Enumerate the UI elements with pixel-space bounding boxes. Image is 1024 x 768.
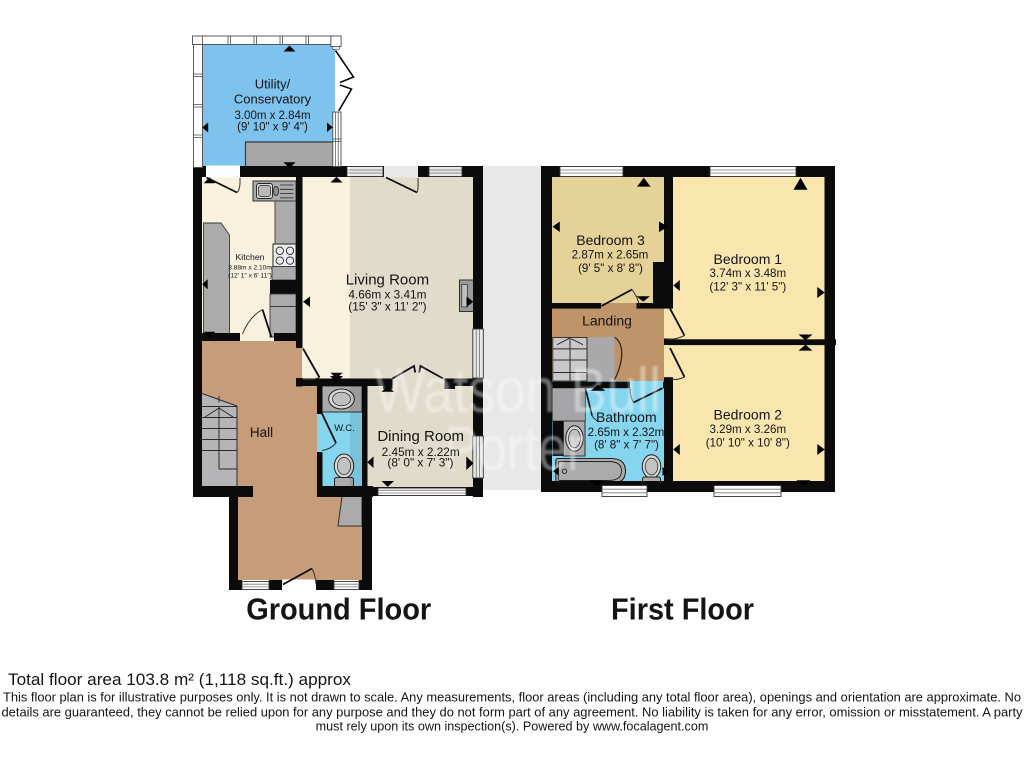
- svg-text:Hall: Hall: [250, 425, 273, 440]
- svg-text:Dining Room: Dining Room: [377, 428, 464, 445]
- svg-text:3.74m x 3.48m: 3.74m x 3.48m: [709, 267, 786, 280]
- svg-text:W.C.: W.C.: [334, 423, 355, 434]
- svg-text:3.29m x 3.26m: 3.29m x 3.26m: [709, 423, 786, 436]
- svg-text:(10' 10" x 10' 8"): (10' 10" x 10' 8"): [706, 437, 790, 450]
- svg-text:Kitchen: Kitchen: [236, 252, 265, 262]
- svg-text:2.87m x 2.65m: 2.87m x 2.65m: [572, 248, 649, 261]
- svg-text:2.65m x 2.32m: 2.65m x 2.32m: [588, 426, 665, 439]
- svg-text:Ground Floor: Ground Floor: [246, 592, 431, 627]
- svg-text:3.00m x 2.84m: 3.00m x 2.84m: [234, 110, 310, 122]
- svg-text:Bathroom: Bathroom: [596, 409, 657, 425]
- svg-text:First Floor: First Floor: [611, 592, 754, 627]
- svg-text:Landing: Landing: [582, 313, 632, 329]
- svg-text:Living Room: Living Room: [346, 271, 429, 288]
- svg-text:(12' 3" x 11' 5"): (12' 3" x 11' 5"): [709, 280, 786, 293]
- svg-text:Total floor area 103.8 m² (1,1: Total floor area 103.8 m² (1,118 sq.ft.)…: [8, 670, 352, 689]
- svg-text:Porter: Porter: [444, 414, 584, 484]
- svg-text:details are guaranteed, they c: details are guaranteed, they cannot be r…: [2, 706, 1024, 720]
- svg-text:(12' 1" x 6' 11"): (12' 1" x 6' 11"): [228, 272, 272, 279]
- svg-text:must rely upon its own inspect: must rely upon its own inspection(s). Po…: [316, 720, 709, 734]
- svg-text:(9' 10" x 9' 4"): (9' 10" x 9' 4"): [237, 121, 308, 133]
- svg-text:Utility/: Utility/: [255, 77, 291, 92]
- svg-text:3.88m x 2.10m: 3.88m x 2.10m: [228, 265, 272, 272]
- svg-text:(15' 3" x 11' 2"): (15' 3" x 11' 2"): [348, 299, 426, 313]
- svg-text:(8' 0" x 7' 3"): (8' 0" x 7' 3"): [387, 455, 453, 469]
- svg-text:This floor plan is for illustr: This floor plan is for illustrative purp…: [3, 691, 1021, 705]
- svg-text:(9' 5" x 8' 8"): (9' 5" x 8' 8"): [578, 262, 643, 275]
- svg-text:Bedroom 1: Bedroom 1: [714, 251, 783, 267]
- svg-text:Bedroom 2: Bedroom 2: [714, 407, 783, 423]
- svg-text:(8' 8" x 7' 7"): (8' 8" x 7' 7"): [594, 439, 659, 452]
- svg-text:Conservatory: Conservatory: [234, 92, 312, 107]
- svg-text:Bedroom 3: Bedroom 3: [576, 232, 645, 248]
